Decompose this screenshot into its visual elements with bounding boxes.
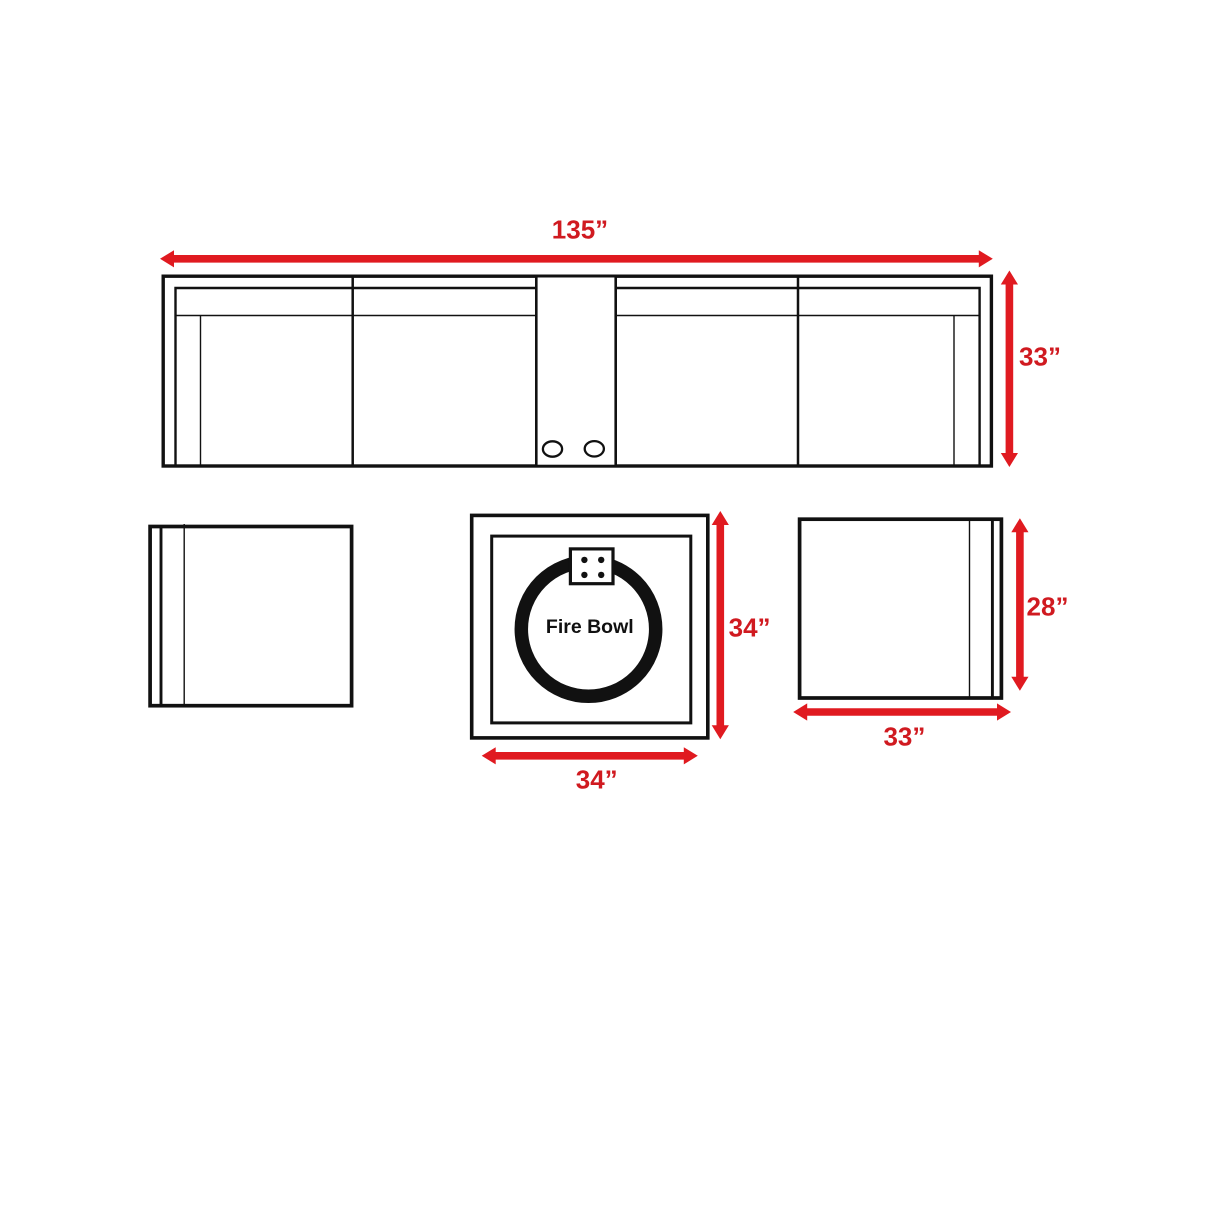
svg-text:28”: 28”	[1027, 592, 1069, 622]
svg-text:33”: 33”	[883, 721, 925, 751]
svg-text:34”: 34”	[576, 765, 618, 795]
svg-text:135”: 135”	[552, 215, 608, 245]
svg-text:33”: 33”	[1019, 342, 1061, 372]
svg-text:Fire Bowl: Fire Bowl	[546, 616, 634, 638]
svg-text:34”: 34”	[729, 613, 771, 643]
